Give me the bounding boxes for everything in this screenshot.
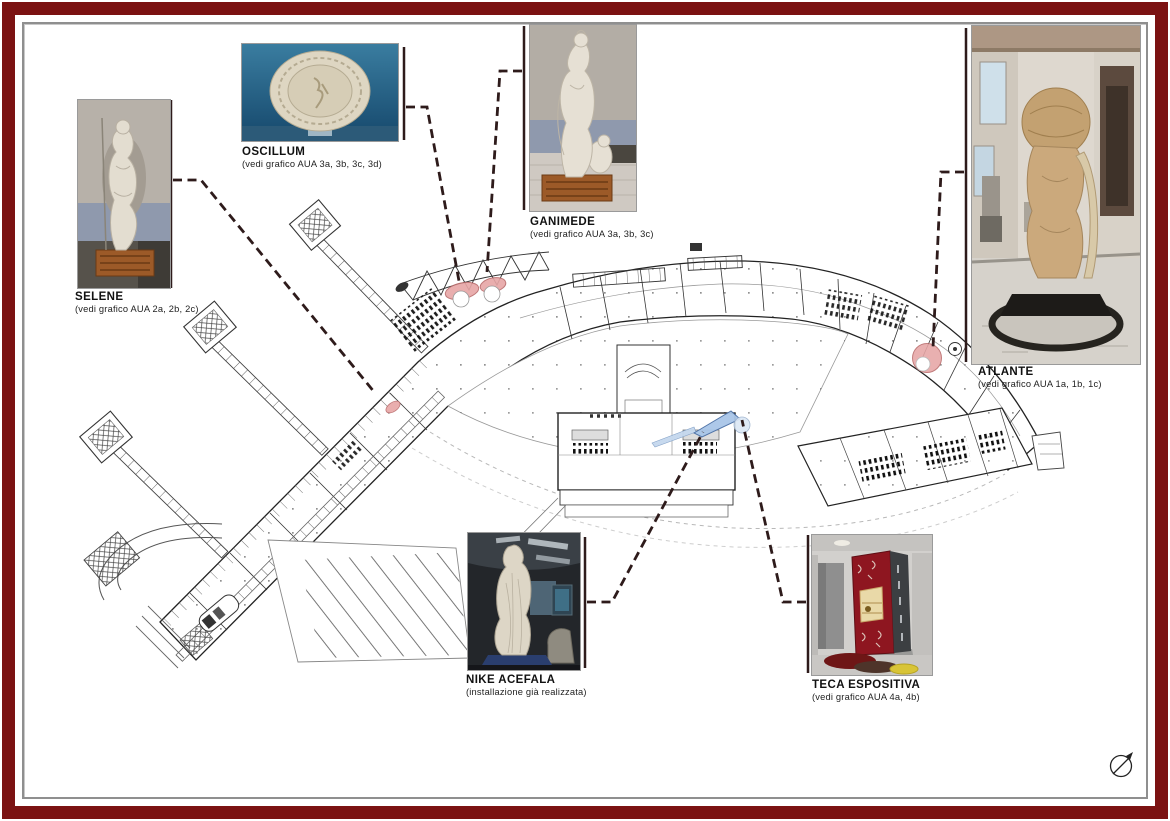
north-arrow-icon (1111, 752, 1134, 777)
oscillum-photo (242, 44, 398, 141)
caption-selene-title: SELENE (75, 291, 245, 303)
nike-photo (468, 533, 580, 670)
plate-page: SELENE (vedi grafico AUA 2a, 2b, 2c) OSC… (0, 0, 1170, 821)
oscillum-photo-art (242, 44, 398, 141)
caption-teca-note: (vedi grafico AUA 4a, 4b) (812, 692, 992, 702)
caption-oscillum: OSCILLUM (vedi grafico AUA 3a, 3b, 3c, 3… (242, 146, 442, 169)
caption-teca-title: TECA ESPOSITIVA (812, 679, 992, 691)
caption-atlante-note: (vedi grafico AUA 1a, 1b, 1c) (978, 379, 1163, 389)
teca-photo-art (812, 535, 932, 675)
caption-nike-title: NIKE ACEFALA (466, 674, 646, 686)
caption-selene: SELENE (vedi grafico AUA 2a, 2b, 2c) (75, 291, 245, 314)
caption-ganimede-note: (vedi grafico AUA 3a, 3b, 3c) (530, 229, 710, 239)
selene-photo (78, 100, 170, 288)
caption-ganimede: GANIMEDE (vedi grafico AUA 3a, 3b, 3c) (530, 216, 710, 239)
landside-works (84, 524, 470, 668)
caption-nike-note: (installazione già realizzata) (466, 687, 646, 697)
caption-nike: NIKE ACEFALA (installazione già realizza… (466, 674, 646, 697)
caption-selene-note: (vedi grafico AUA 2a, 2b, 2c) (75, 304, 245, 314)
ganimede-photo (530, 25, 636, 211)
caption-ganimede-title: GANIMEDE (530, 216, 710, 228)
caption-teca: TECA ESPOSITIVA (vedi grafico AUA 4a, 4b… (812, 679, 992, 702)
atlante-photo-art (972, 26, 1140, 364)
selene-photo-art (78, 100, 170, 288)
teca-photo (812, 535, 932, 675)
caption-atlante-title: ATLANTE (978, 366, 1163, 378)
ganimede-photo-art (530, 25, 636, 211)
nike-photo-art (468, 533, 580, 670)
atlante-photo (972, 26, 1140, 364)
caption-atlante: ATLANTE (vedi grafico AUA 1a, 1b, 1c) (978, 366, 1163, 389)
caption-oscillum-note: (vedi grafico AUA 3a, 3b, 3c, 3d) (242, 159, 442, 169)
caption-oscillum-title: OSCILLUM (242, 146, 442, 158)
